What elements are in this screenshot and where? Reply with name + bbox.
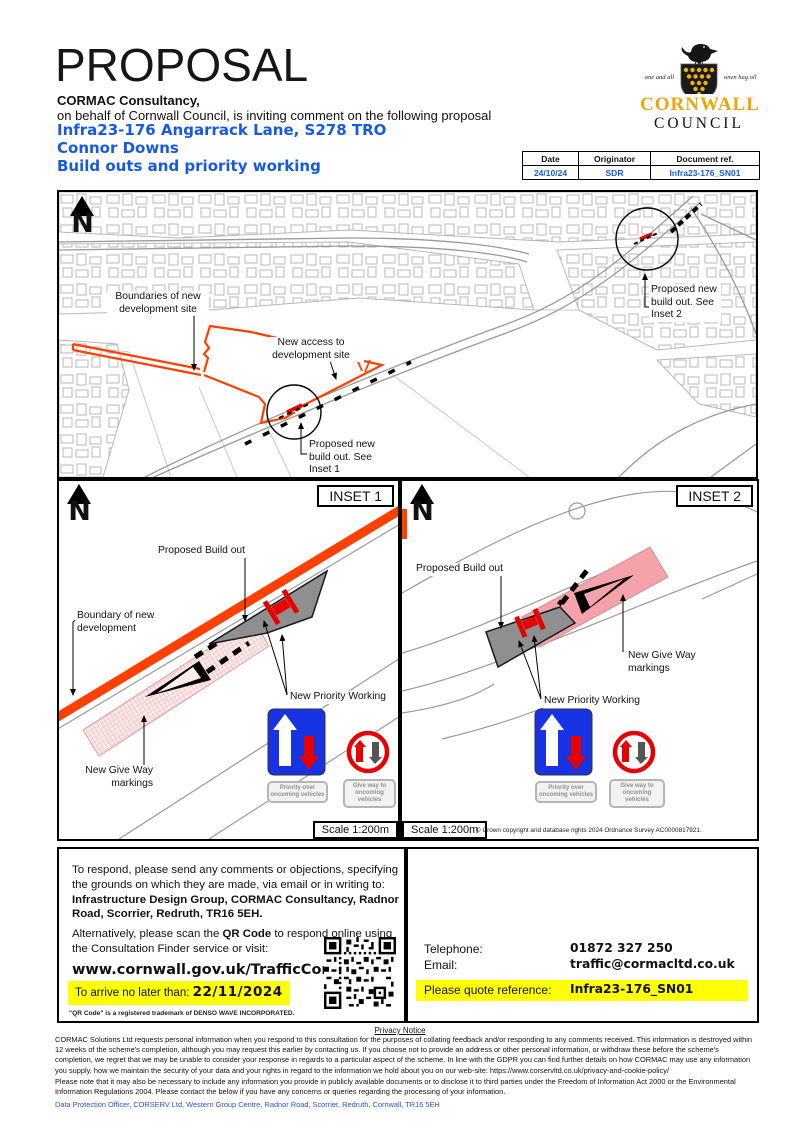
table-header-date: Date [523, 152, 579, 166]
giveway-sign-icon [349, 733, 387, 771]
inset1-boundary-label: Boundary of new development [75, 610, 163, 635]
os-copyright-text: © Crown copyright and database rights 20… [476, 827, 702, 834]
north-label: N [407, 501, 437, 524]
data-protection-officer-line: Data Protection Officer, CORSERV Ltd, We… [55, 1100, 757, 1110]
inset2-buildout-label: Proposed Build out [414, 563, 505, 576]
respond-info-box: To respond, please send any comments or … [57, 847, 406, 1023]
organisation-name: CORMAC Consultancy, [57, 93, 200, 108]
email-address[interactable]: traffic@cormacltd.co.uk [570, 957, 735, 973]
reference-label: Please quote reference: [424, 983, 551, 999]
scheme-description-heading: Build outs and priority working [57, 157, 321, 175]
inset1-giveway-label: New Give Way markings [75, 765, 155, 790]
table-value-docref: Infra23-176_SN01 [651, 166, 759, 179]
inset1-map: N INSET 1 Proposed Build out Boundary of… [57, 479, 400, 841]
giveway-sign-caption: Give way to oncoming vehicles [609, 779, 665, 808]
qr-trademark-note: "QR Code" is a registered trademark of D… [69, 1010, 294, 1019]
north-arrow-icon: N [64, 484, 94, 524]
overview-map: N Boundaries of new development site New… [57, 190, 758, 479]
priority-sign-caption: Priority over oncoming vehicles [535, 781, 597, 803]
document-reference-table: Date Originator Document ref. 24/10/24 S… [522, 151, 760, 180]
giveway-sign-icon [615, 733, 653, 771]
reference-value: Infra23-176_SN01 [570, 982, 693, 998]
inset2-giveway-label: New Give Way markings [626, 650, 716, 675]
logo-cornwall-text: CORNWALL [640, 94, 758, 116]
qr-code-term: QR Code [222, 928, 271, 940]
consultation-url-link[interactable]: www.cornwall.gov.uk/TrafficConsult [72, 961, 363, 980]
privacy-notice-title: Privacy Notice [0, 1026, 800, 1035]
giveway-sign-caption: Give way to oncoming vehicles [343, 779, 396, 808]
inset1-scale-box: Scale 1:200m [313, 821, 398, 839]
respond-instructions: To respond, please send any comments or … [72, 864, 398, 891]
priority-sign-icon [535, 709, 592, 775]
council-crest-icon [640, 38, 758, 94]
email-label: Email: [424, 958, 457, 974]
table-value-date: 24/10/24 [523, 166, 579, 179]
respond-address: Infrastructure Design Group, CORMAC Cons… [72, 894, 399, 921]
inset1-buildout-label: Proposed Build out [156, 545, 247, 558]
inset1-priority-label: New Priority Working [288, 691, 388, 704]
contact-info-box: Telephone: 01872 327 250 Email: traffic@… [406, 847, 759, 1023]
deadline-banner: To arrive no later than: 22/11/2024 [68, 981, 290, 1005]
qr-code [324, 937, 396, 1009]
privacy-paragraph-2: Please note that it may also be necessar… [55, 1077, 757, 1097]
priority-sign-caption: Priority over oncoming vehicles [267, 781, 328, 803]
table-header-originator: Originator [579, 152, 651, 166]
street-map-graphic [59, 192, 756, 477]
deadline-date: 22/11/2024 [193, 984, 283, 1000]
table-value-originator: SDR [579, 166, 651, 179]
logo-council-text: COUNCIL [640, 115, 758, 133]
north-label: N [64, 501, 94, 524]
buildout1-label: Proposed new build out. See Inset 1 [307, 439, 379, 477]
boundaries-label: Boundaries of new development site [107, 291, 209, 316]
inset2-title-box: INSET 2 [676, 485, 753, 507]
table-header-docref: Document ref. [651, 152, 759, 166]
page-title: PROPOSAL [55, 42, 308, 88]
inset1-title-box: INSET 1 [317, 485, 394, 507]
proposal-page: PROPOSAL CORMAC Consultancy, on behalf o… [0, 0, 800, 1132]
telephone-number: 01872 327 250 [570, 941, 673, 957]
priority-sign-icon [268, 709, 325, 775]
deadline-label: To arrive no later than: [75, 987, 193, 999]
new-access-label: New access to development site [262, 337, 360, 362]
scheme-reference-heading: Infra23-176 Angarrack Lane, S278 TRO [57, 121, 386, 139]
north-arrow-icon: N [67, 196, 97, 236]
motto-right: onen hag oll [724, 74, 758, 81]
scheme-location-heading: Connor Downs [57, 139, 179, 157]
privacy-paragraph-1: CORMAC Solutions Ltd requests personal i… [55, 1035, 757, 1076]
cornwall-council-logo: one and all onen hag oll CORNWALL COUNCI… [640, 38, 758, 144]
north-arrow-icon: N [407, 484, 437, 524]
inset2-map: N INSET 2 Proposed Build out New Give Wa… [400, 479, 759, 841]
north-label: N [67, 213, 97, 236]
inset2-scale-box: Scale 1:200m [402, 821, 487, 839]
qr-instructions-pre: Alternatively, please scan the [72, 928, 222, 940]
inset2-priority-label: New Priority Working [542, 695, 642, 708]
telephone-label: Telephone: [424, 942, 483, 958]
motto-left: one and all [640, 74, 674, 81]
buildout2-label: Proposed new build out. See Inset 2 [649, 284, 721, 322]
